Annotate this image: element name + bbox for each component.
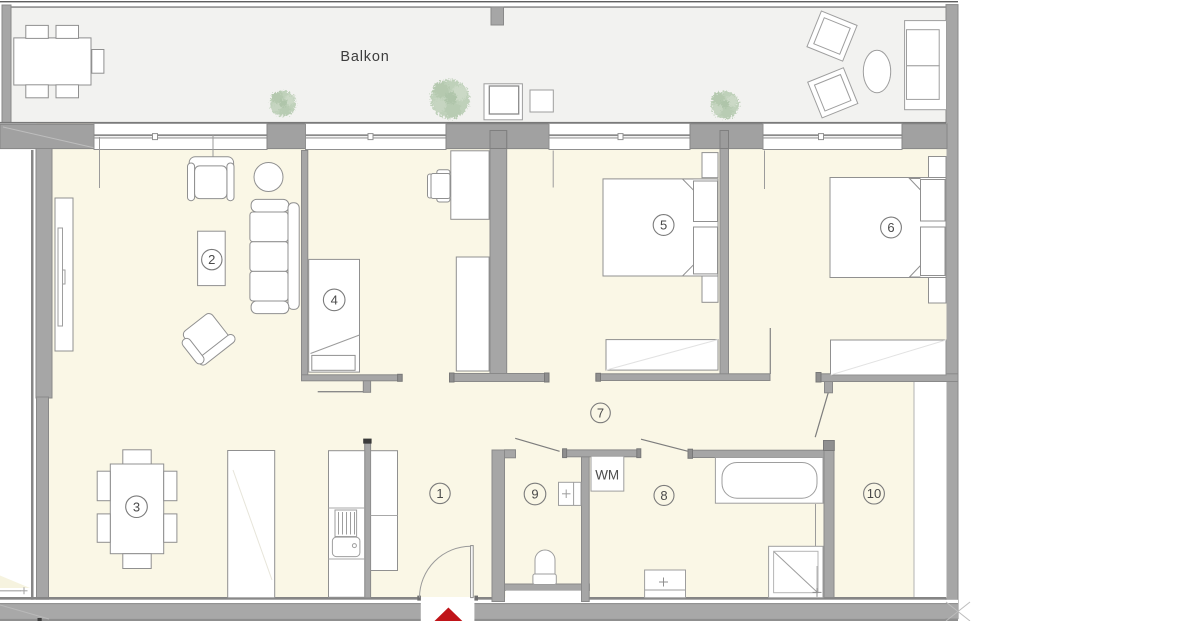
svg-text:3: 3	[133, 499, 140, 514]
svg-text:7: 7	[597, 406, 604, 421]
svg-text:WM: WM	[595, 468, 619, 483]
svg-text:6: 6	[887, 220, 894, 235]
svg-text:8: 8	[660, 488, 667, 503]
svg-text:Balkon: Balkon	[340, 49, 389, 65]
svg-text:4: 4	[331, 293, 338, 308]
svg-text:1: 1	[436, 486, 443, 501]
svg-text:10: 10	[867, 486, 881, 501]
svg-text:5: 5	[660, 218, 667, 233]
svg-text:9: 9	[531, 487, 538, 502]
svg-text:2: 2	[208, 252, 215, 267]
